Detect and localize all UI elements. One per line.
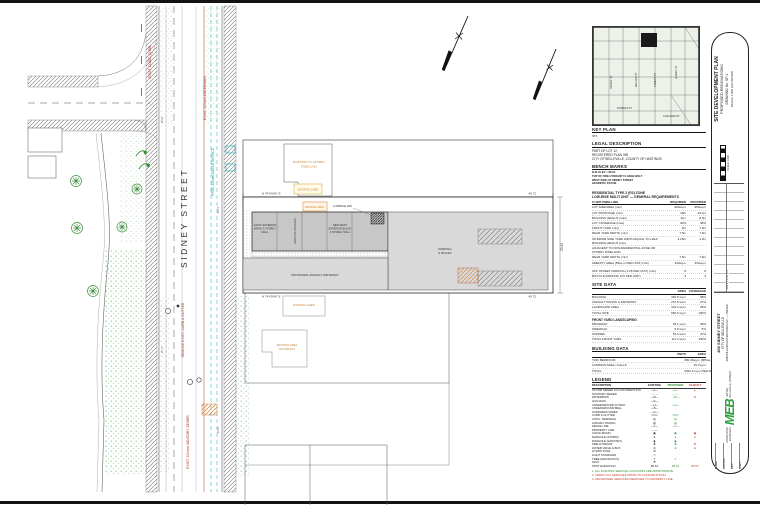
manhole-icon xyxy=(197,378,201,382)
key-plan-street-label: QUEEN ST xyxy=(675,66,679,79)
svg-text:8 SPACES: 8 SPACES xyxy=(439,251,452,255)
title-block-strip: SITE DEVELOPMENT PLAN PROPOSED RENOVATIO… xyxy=(711,32,749,474)
red-watermain-label: EXIST. 200mm WATERMAIN xyxy=(203,76,207,120)
svg-text:EXIST. EXTERIOR: EXIST. EXTERIOR xyxy=(254,223,276,227)
garbage-pad xyxy=(371,213,384,224)
svg-text:86.59: 86.59 xyxy=(217,206,220,213)
south-shed-label: EXISTING SHED xyxy=(293,303,315,307)
building-data-table: TWO BEDROOM 6 80.36sq.m (865sq.ft) COMMO… xyxy=(592,358,706,374)
side-street xyxy=(28,34,157,142)
legend-title: LEGEND xyxy=(592,378,706,383)
legal-line: CITY OF BELLEVILLE, COUNTY OF HASTINGS xyxy=(592,157,706,161)
footer-cell: DATE xyxy=(731,443,735,469)
svg-text:DWELLING: DWELLING xyxy=(301,165,317,169)
zoning-table-extra: OFF STREET PARKING (1.25 PER UNIT) (min)… xyxy=(592,269,706,279)
svg-text:EXTERIOR BLOCK: EXTERIOR BLOCK xyxy=(329,227,352,231)
svg-text:NEW WEST: NEW WEST xyxy=(333,223,348,227)
south-asphalt-label: EXISTING AREA xyxy=(277,343,298,347)
revisions-grid: REVISIONS xyxy=(714,183,744,293)
red-conc-curb-label: EXIST. CONC. CURB xyxy=(148,45,152,79)
scale-bar-icon xyxy=(720,145,726,181)
key-plan-scale: NTS xyxy=(592,135,706,139)
project-info: 400 SIDNEY STREET CITY OF BELLEVILLE JMB… xyxy=(716,295,729,371)
north-arrow-icon xyxy=(533,49,556,100)
south-neighbour-parcels: EXISTING SHED EXISTING AREA OF ASPHALT xyxy=(245,268,478,505)
garbage-pad-label: GARBAGE PAD xyxy=(333,204,352,208)
zoning-row: INTERIOR SIDE YARD WIDTH EQUAL TO HALF B… xyxy=(592,237,706,246)
front-yard-table: DRIVEWAY 53.1 sq.m 48% SIDEWALK 5.8 sq.m… xyxy=(592,322,706,343)
legal-description-title: LEGAL DESCRIPTION xyxy=(592,142,706,147)
footer-cell: CHECKED xyxy=(723,443,727,469)
zoning-row: ADJACENT TO NON-RESIDENTIAL ZONE OR STOR… xyxy=(592,246,706,255)
west-side-features xyxy=(28,128,109,492)
footer-cell: DRAWN xyxy=(715,443,719,469)
bench-line: GEODETIC DATUM xyxy=(592,182,706,186)
side-dimension-label: 20.12 xyxy=(560,243,564,251)
hatched-parking-patch xyxy=(478,229,522,244)
title-block-footer: DRAWNCHECKEDDATESCALE xyxy=(715,443,743,469)
manhole-icon xyxy=(165,308,170,313)
site-location-marker xyxy=(641,33,657,47)
legend-asbuilt-symbol: 86.64 xyxy=(686,465,704,469)
key-plan-street-label: ALBERT ST xyxy=(654,73,658,87)
east-curb-hatch xyxy=(224,6,236,492)
neighbour-dwelling-label: EXISTING 2½ STOREY xyxy=(293,160,325,164)
meb-logo: MEB xyxy=(723,399,736,425)
cyan-water-service-label: PROP. 150mm WATER SERVICE xyxy=(211,148,215,196)
svg-text:OF ASPHALT: OF ASPHALT xyxy=(279,347,296,351)
concrete-walk xyxy=(252,251,388,257)
site-data-title: SITE DATA xyxy=(592,283,706,288)
manhole-icon xyxy=(187,379,192,384)
legend-existing-symbol: 86.64 xyxy=(644,465,665,469)
red-sanitary-label: EXIST. 200mm SANITARY SEWER xyxy=(186,415,190,469)
bench-marks-lines: B.M. ELEV = 86.64TOP OF FIRE HYDRANT FLA… xyxy=(592,171,706,185)
drawing-titles: SITE DEVELOPMENT PLAN PROPOSED RENOVATIO… xyxy=(714,37,734,141)
legal-description-lines: PART OF LOT 12,REGISTERED PLAN 269CITY O… xyxy=(592,149,706,161)
svg-text:86.68: 86.68 xyxy=(217,426,220,433)
small-structure-box xyxy=(458,268,478,283)
hatched-parking-patch xyxy=(478,271,522,286)
legend-row: SPOT ELEVATION 86.64 86.64 86.64 xyxy=(592,465,706,469)
site-data-row: TOTAL SITE 952.5 sq.m 100% xyxy=(592,311,706,316)
building-data-title: BUILDING DATA xyxy=(592,347,706,352)
key-plan-street-label: DUNDAS ST xyxy=(617,107,632,111)
key-plan-street-label: WILLIAM ST xyxy=(635,72,639,87)
distance-top-label: 45.72 xyxy=(528,192,536,196)
engineer-logo-block: CONSULTING ENGINEERS MEB LIMITED BELLEVI… xyxy=(714,371,744,443)
bench-marks-title: BENCH MARKS xyxy=(592,165,706,170)
red-curb-label: REMOVE EXIST. CURB & GUTTER xyxy=(181,302,185,357)
parking-label: PARKING xyxy=(438,247,452,251)
north-neighbour-parcel: EXISTING 2½ STOREY DWELLING EXISTING SHE… xyxy=(243,140,553,197)
bearing-top-label: N 74°09'40" E xyxy=(262,192,281,196)
subject-parcel: N 74°09'40" E 45.72 EXIST. EXTERIOR BRIC… xyxy=(243,192,564,299)
catch-basin-icon xyxy=(202,404,217,415)
footer-cell: SCALE xyxy=(739,443,743,469)
legend-proposed-symbol: 86.64 xyxy=(665,465,686,469)
key-plan-street-label: CHATHAM ST xyxy=(663,115,680,119)
north-arrow-icon xyxy=(442,16,468,71)
legend-notes: 1. ALL EXISTING SERVICE LOCATIONS ARE AP… xyxy=(592,470,706,482)
driveway-label: PROPOSED ASPHALT DRIVEWAY xyxy=(291,273,339,277)
building-data-row: TOTAL 6 362.5 sq.m PER FLOOR xyxy=(592,369,706,374)
well-label: EXISTING WELL xyxy=(305,205,325,209)
existing-building-outline xyxy=(28,156,56,178)
graphic-scale-bar: SCALE 1:200 xyxy=(720,143,730,183)
existing-building-outline xyxy=(28,128,62,152)
svg-text:WALL: WALL xyxy=(262,230,270,234)
svg-text:NEW UNIT ENTRANCE: NEW UNIT ENTRANCE xyxy=(294,218,297,244)
svg-text:86.64: 86.64 xyxy=(161,116,164,123)
zoning-row: BICYCLE PARKING (0.5 PER UNIT) 3 3 xyxy=(592,274,706,279)
key-plan-map: SIDNEY ST WILLIAM ST ALBERT ST DUNDAS ST… xyxy=(592,26,700,126)
data-panel: SIDNEY ST WILLIAM ST ALBERT ST DUNDAS ST… xyxy=(592,26,706,482)
site-plan-sheet: EXIST. 200mm WATERMAIN REMOVE EXIST. CUR… xyxy=(0,0,760,505)
distance-bottom-label: 45.72 xyxy=(528,295,536,299)
svg-text:86.71: 86.71 xyxy=(161,346,164,353)
svg-text:2 STOREY WALL: 2 STOREY WALL xyxy=(330,230,351,234)
neighbour-shed-label: EXISTING SHED xyxy=(298,188,319,192)
street-name-label: SIDNEY STREET xyxy=(179,168,189,268)
key-plan-title: KEY PLAN xyxy=(592,128,706,133)
key-plan-street-label: SIDNEY ST xyxy=(610,75,614,89)
legend-table: STORM SEWER & FLOW DIRECTION —▸— —▸— ▸ S… xyxy=(592,389,706,468)
proposed-building xyxy=(252,212,388,251)
front-yard-row: TOTAL FRONT YARD 111.2 sq.m 100% xyxy=(592,337,706,342)
valve-icon xyxy=(177,305,180,308)
key-plan-grid xyxy=(593,27,699,125)
bearing-bottom-label: N 74°09'40" E xyxy=(262,295,281,299)
site-data-table: BUILDING 362.5 sq.m 38% ASPHALT PAVING &… xyxy=(592,295,706,316)
svg-text:BRICK 2 STOREY: BRICK 2 STOREY xyxy=(254,227,276,231)
project-owner: JMB WILLIAMS ENTERPRISES INC. — OWNER xyxy=(726,295,730,371)
zoning-table: LOT SIZE/AREA (min) 900sq.m 952sq.m LOT … xyxy=(592,205,706,265)
zoning-title-2: LOW-RISE MULTI UNIT — GENERAL REQUIREMEN… xyxy=(592,195,706,199)
note-line: 3. ABANDONED SERVICES REMOVED TO PROPERT… xyxy=(592,478,706,482)
